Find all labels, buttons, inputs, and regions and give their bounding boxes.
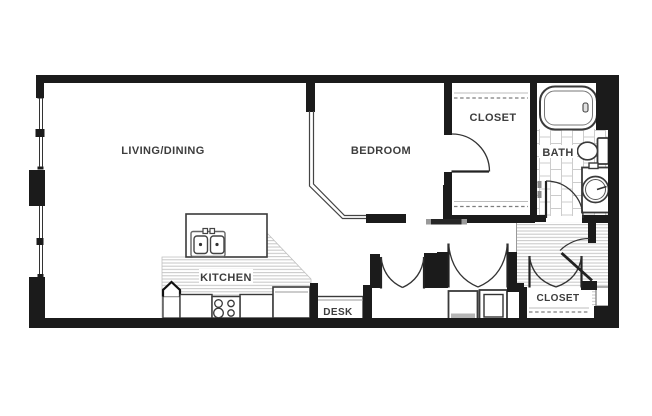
appliance-square-left (449, 291, 478, 320)
bedroom-south-wall (366, 214, 406, 223)
floor-plan: LIVING/DINING BEDROOM CLOSET BATH KITCHE… (0, 0, 652, 416)
door-hardware (538, 191, 542, 198)
window-mullion (37, 238, 44, 245)
bath-south-wall-left (530, 215, 546, 222)
room-label-kitchen: KITCHEN (200, 272, 252, 284)
bath-south-wall-right (582, 215, 615, 223)
room-label-bath: BATH (542, 147, 573, 159)
room-label-desk: DESK (323, 307, 353, 318)
entry-niche-shelf (596, 287, 609, 306)
bedroom-closet-door (452, 134, 490, 172)
west-pier-bottom (29, 277, 45, 322)
bedroom-partition-top (306, 83, 315, 112)
appliance-square-right (480, 290, 508, 322)
desk-right-stub (363, 285, 372, 322)
refrigerator (273, 287, 310, 318)
room-label-living-dining: LIVING/DINING (121, 145, 204, 157)
closet-west-wall-upper (444, 83, 452, 135)
desk-left-stub (310, 283, 318, 322)
bedroom-sliding-door (426, 219, 467, 225)
window-mullion (36, 129, 45, 137)
bathtub (540, 87, 597, 130)
nw-corner-post (36, 75, 44, 98)
se-corner-wall (594, 306, 619, 322)
nook-right-jamb (424, 253, 438, 288)
room-label-bedroom: BEDROOM (351, 145, 411, 157)
glass-partition (310, 111, 367, 219)
room-label-closet-bottom: CLOSET (537, 293, 580, 304)
laundry-double-doors (449, 244, 508, 288)
wd-left-jamb (437, 252, 448, 288)
bottom-wall (29, 318, 619, 328)
tub-surround-wall (596, 83, 618, 130)
west-pier-mid (29, 170, 45, 206)
kitchen-sink (191, 229, 225, 257)
nook-left-jamb (370, 254, 380, 288)
door-hardware (538, 181, 542, 188)
room-label-closet-top: CLOSET (469, 112, 516, 124)
washing-machine (582, 163, 609, 213)
stove (212, 297, 240, 319)
closet-bath-wall (530, 83, 537, 222)
entry-corner-wall (581, 281, 597, 290)
nook-double-doors (381, 257, 424, 289)
entry-stub-wall (588, 222, 596, 243)
top-wall (36, 75, 619, 83)
